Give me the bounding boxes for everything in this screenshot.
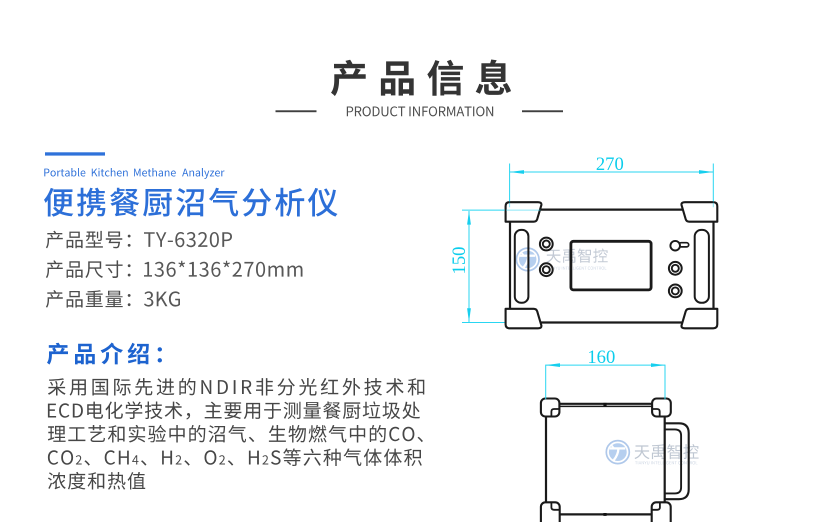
- svg-text:150: 150: [449, 247, 470, 275]
- svg-text:160: 160: [587, 347, 615, 368]
- svg-text:270: 270: [596, 154, 624, 175]
